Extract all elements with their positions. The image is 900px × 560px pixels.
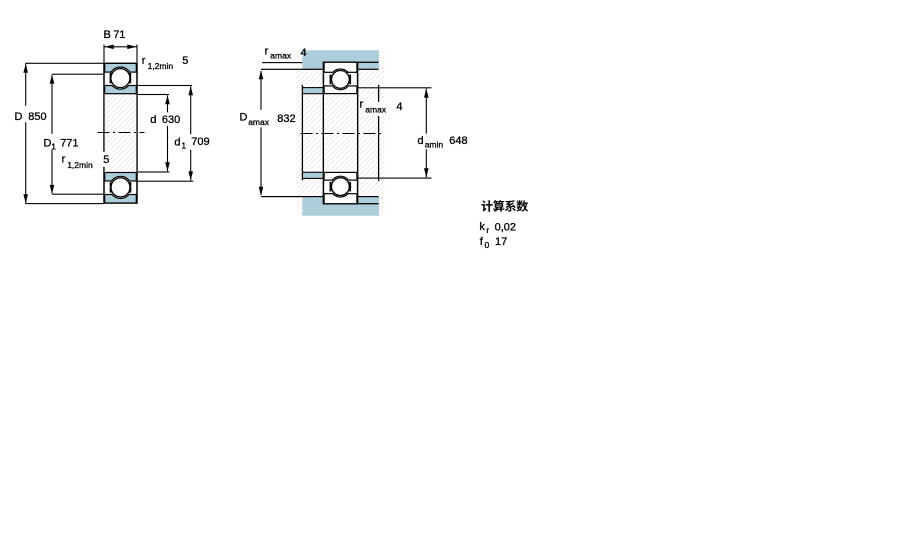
svg-text:D: D <box>15 111 23 123</box>
svg-text:r: r <box>62 153 66 165</box>
svg-text:850: 850 <box>28 111 46 123</box>
svg-text:r: r <box>265 46 269 58</box>
svg-text:17: 17 <box>495 236 507 248</box>
svg-text:832: 832 <box>277 113 295 125</box>
svg-text:0,02: 0,02 <box>495 221 516 233</box>
svg-text:648: 648 <box>449 135 467 147</box>
svg-text:4: 4 <box>301 47 307 59</box>
svg-text:d: d <box>174 136 180 148</box>
svg-text:d: d <box>150 114 156 126</box>
svg-text:0: 0 <box>485 240 490 250</box>
svg-text:D: D <box>240 112 248 124</box>
svg-text:amax: amax <box>270 51 292 61</box>
svg-text:771: 771 <box>60 137 78 149</box>
svg-text:amax: amax <box>365 104 387 114</box>
svg-text:630: 630 <box>162 114 180 126</box>
svg-text:D: D <box>44 138 52 150</box>
svg-text:5: 5 <box>103 154 109 166</box>
svg-text:r: r <box>360 99 364 111</box>
svg-text:amax: amax <box>248 117 270 127</box>
svg-text:71: 71 <box>113 29 125 41</box>
svg-text:709: 709 <box>191 136 209 148</box>
svg-text:1,2min: 1,2min <box>67 160 93 170</box>
svg-text:1,2min: 1,2min <box>148 61 174 71</box>
svg-text:r: r <box>486 225 489 235</box>
svg-text:k: k <box>479 221 485 233</box>
svg-text:d: d <box>418 135 424 147</box>
svg-text:5: 5 <box>182 55 188 67</box>
svg-text:r: r <box>142 55 146 67</box>
svg-text:4: 4 <box>396 101 402 113</box>
svg-text:1: 1 <box>181 140 186 150</box>
svg-text:amin: amin <box>425 140 444 150</box>
svg-text:1: 1 <box>51 142 56 152</box>
svg-text:B: B <box>104 29 111 41</box>
